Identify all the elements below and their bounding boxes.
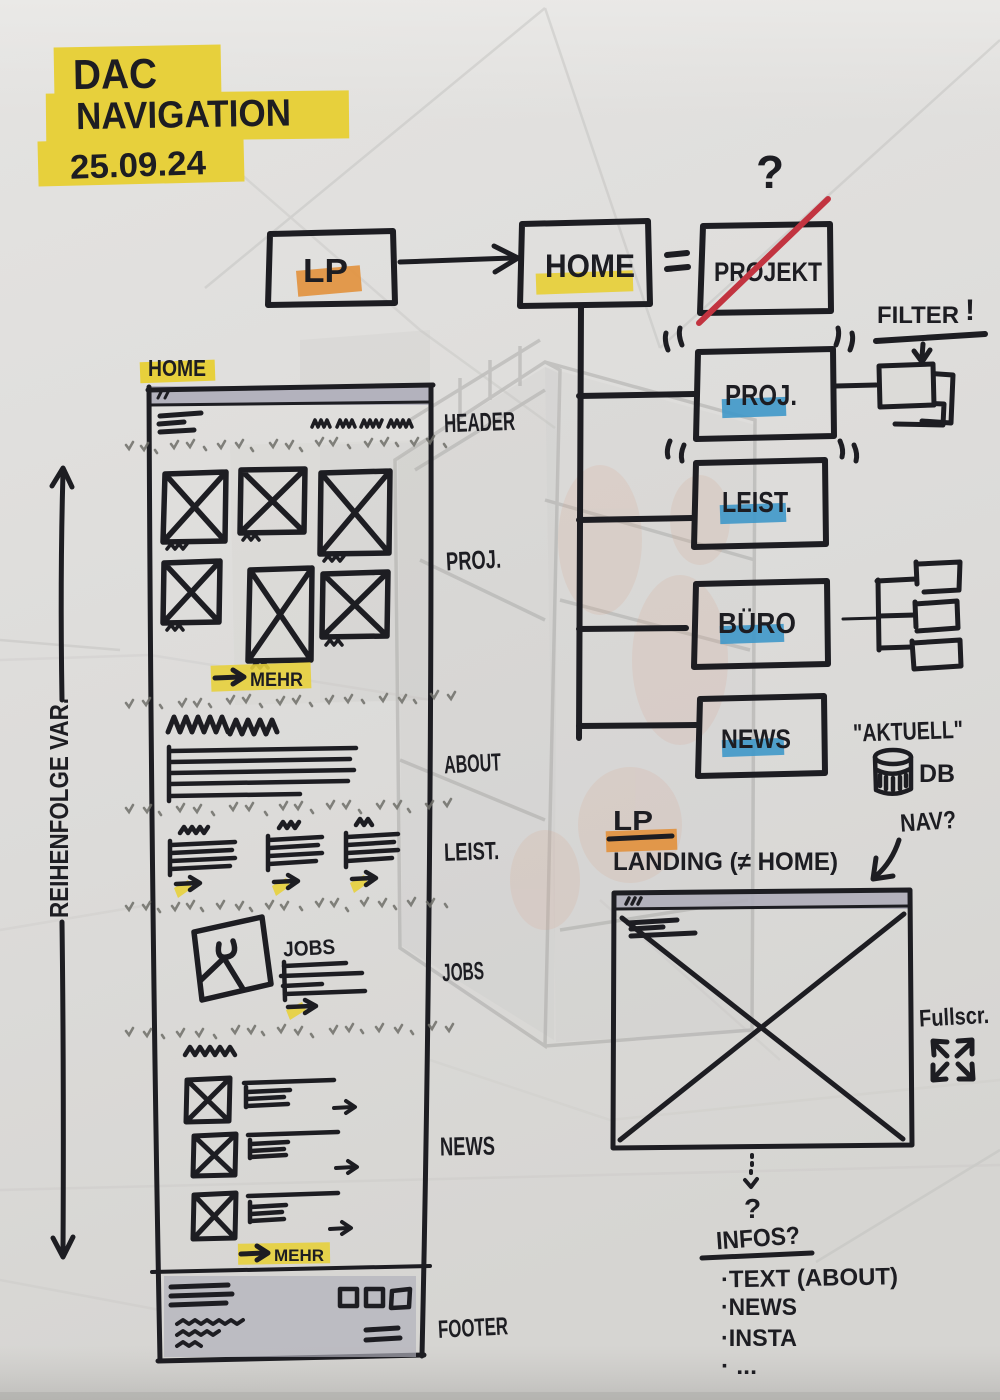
svg-text:HOME: HOME xyxy=(148,355,206,381)
svg-text:HEADER: HEADER xyxy=(444,406,516,438)
svg-text:HOME: HOME xyxy=(545,248,635,284)
svg-text:FILTER: FILTER xyxy=(877,302,959,329)
svg-text:NEWS: NEWS xyxy=(440,1131,496,1162)
svg-text:·TEXT (ABOUT): ·TEXT (ABOUT) xyxy=(721,1263,898,1293)
svg-text:PROJ.: PROJ. xyxy=(445,544,501,577)
svg-text:NAVIGATION: NAVIGATION xyxy=(76,92,292,138)
svg-text:JOBS: JOBS xyxy=(283,936,336,962)
svg-text:Fullscr.: Fullscr. xyxy=(918,1002,989,1033)
svg-text:REIHENFOLGE VAR.: REIHENFOLGE VAR. xyxy=(44,698,74,918)
svg-text:BÜRO: BÜRO xyxy=(718,607,796,640)
svg-text:?: ? xyxy=(756,146,784,198)
svg-text:PROJ.: PROJ. xyxy=(725,380,797,412)
svg-text:NEWS: NEWS xyxy=(721,724,791,754)
svg-text:·NEWS: ·NEWS xyxy=(721,1294,797,1321)
svg-text:·INSTA: ·INSTA xyxy=(721,1325,797,1352)
svg-text:LEIST.: LEIST. xyxy=(444,837,500,867)
svg-text:!: ! xyxy=(965,294,975,327)
svg-text:MEHR: MEHR xyxy=(250,670,303,691)
svg-text:· ...: · ... xyxy=(721,1353,757,1380)
svg-text:25.09.24: 25.09.24 xyxy=(69,144,206,187)
svg-text:LANDING (≠ HOME): LANDING (≠ HOME) xyxy=(613,848,838,876)
svg-text:DAC: DAC xyxy=(73,50,158,98)
svg-text:INFOS?: INFOS? xyxy=(715,1222,801,1256)
svg-text:"AKTUELL": "AKTUELL" xyxy=(853,716,964,748)
svg-text:?: ? xyxy=(744,1193,761,1224)
svg-text:ABOUT: ABOUT xyxy=(443,748,501,779)
svg-text:PROJEKT: PROJEKT xyxy=(714,257,822,287)
svg-text:NAV?: NAV? xyxy=(899,806,957,838)
svg-text:MEHR: MEHR xyxy=(274,1246,324,1265)
svg-text:LP: LP xyxy=(303,252,348,289)
svg-text:FOOTER: FOOTER xyxy=(437,1312,508,1344)
svg-text:LEIST.: LEIST. xyxy=(722,487,792,519)
svg-text:DB: DB xyxy=(919,760,955,788)
svg-text:JOBS: JOBS xyxy=(441,957,484,987)
